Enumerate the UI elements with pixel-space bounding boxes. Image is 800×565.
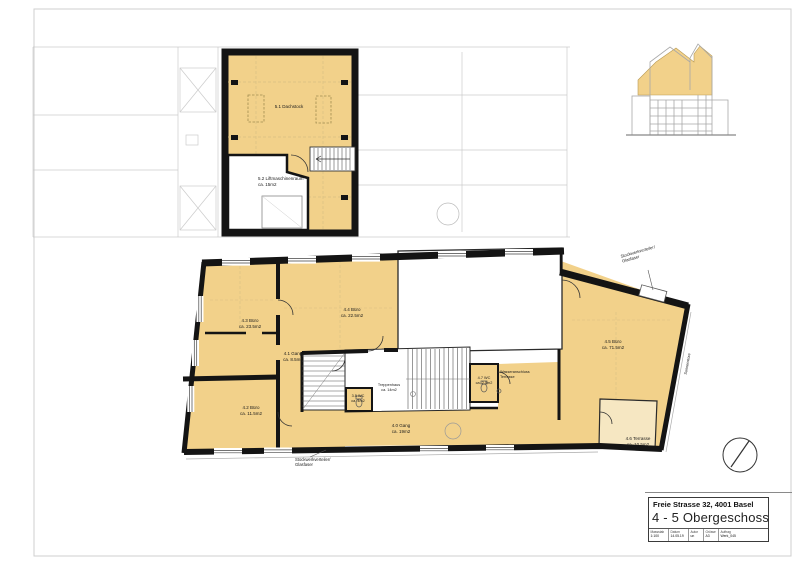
void-room: [398, 248, 562, 352]
title-block-topline: [645, 492, 792, 493]
main-floor-plan: [183, 248, 691, 459]
section-drawing: [626, 44, 736, 135]
room-label-4-0: 4.0 Gangca. 19m2: [392, 423, 411, 435]
room-label-4-3: 4.3 Büroca. 23.5m2: [239, 318, 261, 330]
title-block-meta: Massstab 1:100 Datum 14.05.19 Autor un G…: [649, 528, 768, 541]
orientation-mark: [723, 438, 757, 472]
drawing-canvas: [0, 0, 800, 565]
room-label-4-5: 4.5 Büroca. 71.5m2: [602, 339, 624, 351]
page-title: 4 - 5 Obergeschoss: [649, 509, 768, 525]
room-label-5-2: 5.2 Liftmaschinenraum ca. 15m2: [258, 176, 304, 188]
room-label-4-7-wc: 4.7 WCca. 2.5m2: [476, 376, 493, 386]
room-label-3-5-wc: 3.5 WCca. 4m2: [351, 394, 365, 404]
meta-groesse: Grösse A3: [704, 529, 719, 541]
annotation-verteiler-bottom: Stockwerkverteiler/Glasfaser: [295, 457, 330, 468]
room-label-4-1: 4.1 Gangca. 8.5m2: [283, 351, 303, 363]
project-address: Freie Strasse 32, 4001 Basel: [649, 498, 768, 509]
attic-plan: [225, 52, 355, 233]
annotation-wasseranschluss: WasseranschlussTerrasse: [500, 370, 530, 380]
meta-autor: Autor un: [689, 529, 704, 541]
attic-stair: [310, 147, 355, 171]
room-label-4-2: 4.2 Büroca. 11.5m2: [240, 405, 262, 417]
room-label-4-6: 4.6 Terrasseca. 10.5m2: [626, 436, 651, 448]
room-label-5-1: 5.1 Dachstock: [275, 104, 304, 110]
meta-massstab: Massstab 1:100: [649, 529, 669, 541]
meta-auftrag: Auftrag Werk_045: [719, 529, 768, 541]
meta-datum: Datum 14.05.19: [669, 529, 689, 541]
room-label-4-4: 4.4 Büroca. 22.5m2: [341, 307, 363, 319]
room-label-treppenhaus: Treppenhausca. 14m2: [378, 383, 400, 393]
plan-sheet: 5.1 Dachstock 5.2 Liftmaschinenraum ca. …: [0, 0, 800, 565]
title-block: Freie Strasse 32, 4001 Basel 4 - 5 Oberg…: [648, 497, 769, 542]
